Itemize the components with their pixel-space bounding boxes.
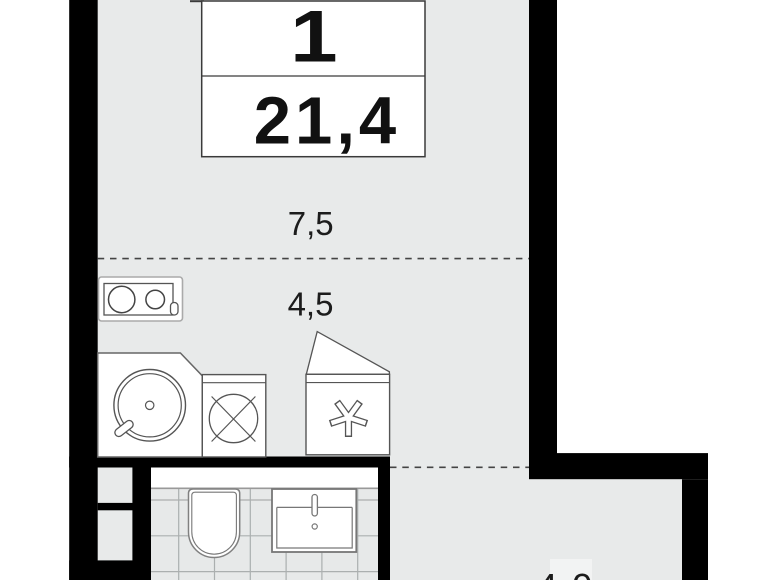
svg-text:1: 1 <box>290 0 338 77</box>
svg-text:4,5: 4,5 <box>288 285 334 322</box>
svg-text:4,0: 4,0 <box>537 566 594 580</box>
svg-text:7,5: 7,5 <box>288 205 334 242</box>
svg-text:21,4: 21,4 <box>254 83 400 158</box>
